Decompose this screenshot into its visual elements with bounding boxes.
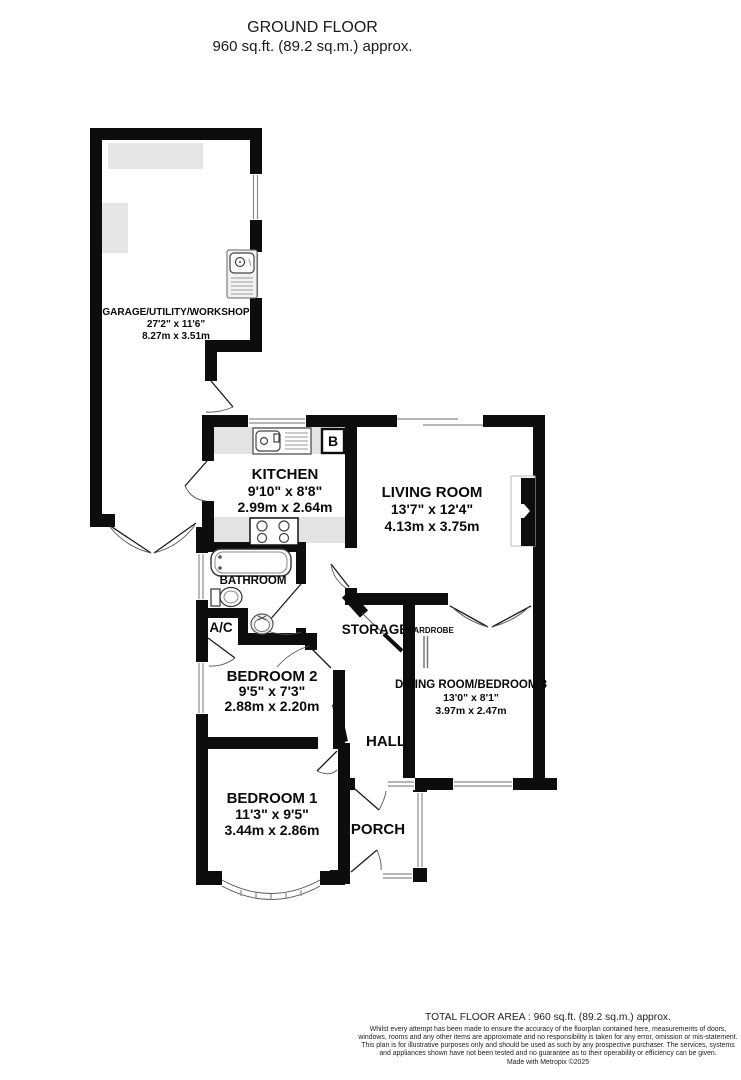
metropix-credit: Made with Metropix ©2025 [358,1059,738,1068]
garage-patch-left [98,203,128,253]
living-room-name: LIVING ROOM [382,484,483,501]
porch-name: PORCH [351,821,405,838]
fireplace [511,476,535,546]
airing-cupboard-name: A/C [209,620,233,635]
living-dining-double-door [450,606,531,627]
living-room-door [331,564,349,588]
garage-imperial: 27'2" x 11'6" [147,319,205,330]
kitchen-window [248,415,306,427]
front-door [351,850,381,872]
dining-window [453,778,513,790]
floorplan-page: GROUND FLOOR 960 sq.ft. (89.2 sq.m.) app… [0,0,741,1080]
porch-inner-door [355,789,386,810]
disclaimer-text: Whilst every attempt has been made to en… [358,1026,738,1059]
dining-room-label: DINING ROOM/BEDROOM 3 13'0" x 8'1" 3.97m… [395,679,547,717]
storage-name: STORAGE [342,622,409,637]
airing-cupboard-door [208,638,235,666]
bedroom1-metric: 3.44m x 2.86m [225,822,320,838]
porch-right-window [415,792,425,868]
living-room-window [397,415,483,427]
bathroom-window [196,553,206,600]
living-room-imperial: 13'7" x 12'4" [391,501,473,517]
bathroom-name: BATHROOM [220,575,287,587]
bedroom1-imperial: 11'3" x 9'5" [235,806,309,822]
kitchen-name: KITCHEN [252,466,319,483]
plan-footer: TOTAL FLOOR AREA : 960 sq.ft. (89.2 sq.m… [358,1012,738,1068]
doors [109,381,531,872]
porch-top-window [387,778,415,790]
garage-floor-patches [98,143,203,253]
hob [250,518,298,545]
wardrobe-front [424,636,428,668]
bedroom2-metric: 2.88m x 2.20m [225,698,320,714]
kitchen-imperial: 9'10" x 8'8" [248,483,322,499]
garage-patch-top [108,143,203,169]
bedroom2-door [277,646,331,668]
bedroom2-label: BEDROOM 2 9'5" x 7'3" 2.88m x 2.20m [225,668,320,714]
bedroom2-window [196,662,206,714]
boiler-label: B [328,433,338,449]
garage-window-1 [250,174,261,220]
garage-sink [227,250,257,298]
basin [251,614,273,634]
bay-window [222,880,320,900]
dining-room-metric: 3.97m x 2.47m [435,705,506,717]
bedroom1-name: BEDROOM 1 [227,790,318,807]
living-room-label: LIVING ROOM 13'7" x 12'4" 4.13m x 3.75m [382,484,483,534]
porch-bottom-window [382,870,413,882]
hall-name: HALL [366,733,406,750]
garage-double-door [109,523,196,553]
bedroom1-label: BEDROOM 1 11'3" x 9'5" 3.44m x 2.86m [225,790,320,838]
room-labels: GARAGE/UTILITY/WORKSHOP 27'2" x 11'6" 8.… [102,307,547,838]
garage-metric: 8.27m x 3.51m [142,331,210,342]
floorplan-svg: B [0,0,741,1080]
living-room-metric: 4.13m x 3.75m [385,518,480,534]
kitchen-label: KITCHEN 9'10" x 8'8" 2.99m x 2.64m [238,466,333,515]
dining-room-name: DINING ROOM/BEDROOM 3 [395,679,547,691]
total-floor-area: TOTAL FLOOR AREA : 960 sq.ft. (89.2 sq.m… [358,1012,738,1023]
garage-label: GARAGE/UTILITY/WORKSHOP 27'2" x 11'6" 8.… [102,307,250,342]
bedroom1-door [317,751,337,774]
kitchen-metric: 2.99m x 2.64m [238,499,333,515]
kitchen-west-door [185,461,207,501]
toilet [211,588,242,607]
boiler: B [322,429,344,453]
dining-room-imperial: 13'0" x 8'1" [443,692,499,704]
bathtub [211,549,291,576]
garage-name: GARAGE/UTILITY/WORKSHOP [102,307,250,318]
garage-passage-door [206,381,233,412]
wardrobe-name: WARDROBE [406,626,454,635]
kitchen-sink [253,428,311,454]
bedroom2-imperial: 9'5" x 7'3" [239,683,306,699]
